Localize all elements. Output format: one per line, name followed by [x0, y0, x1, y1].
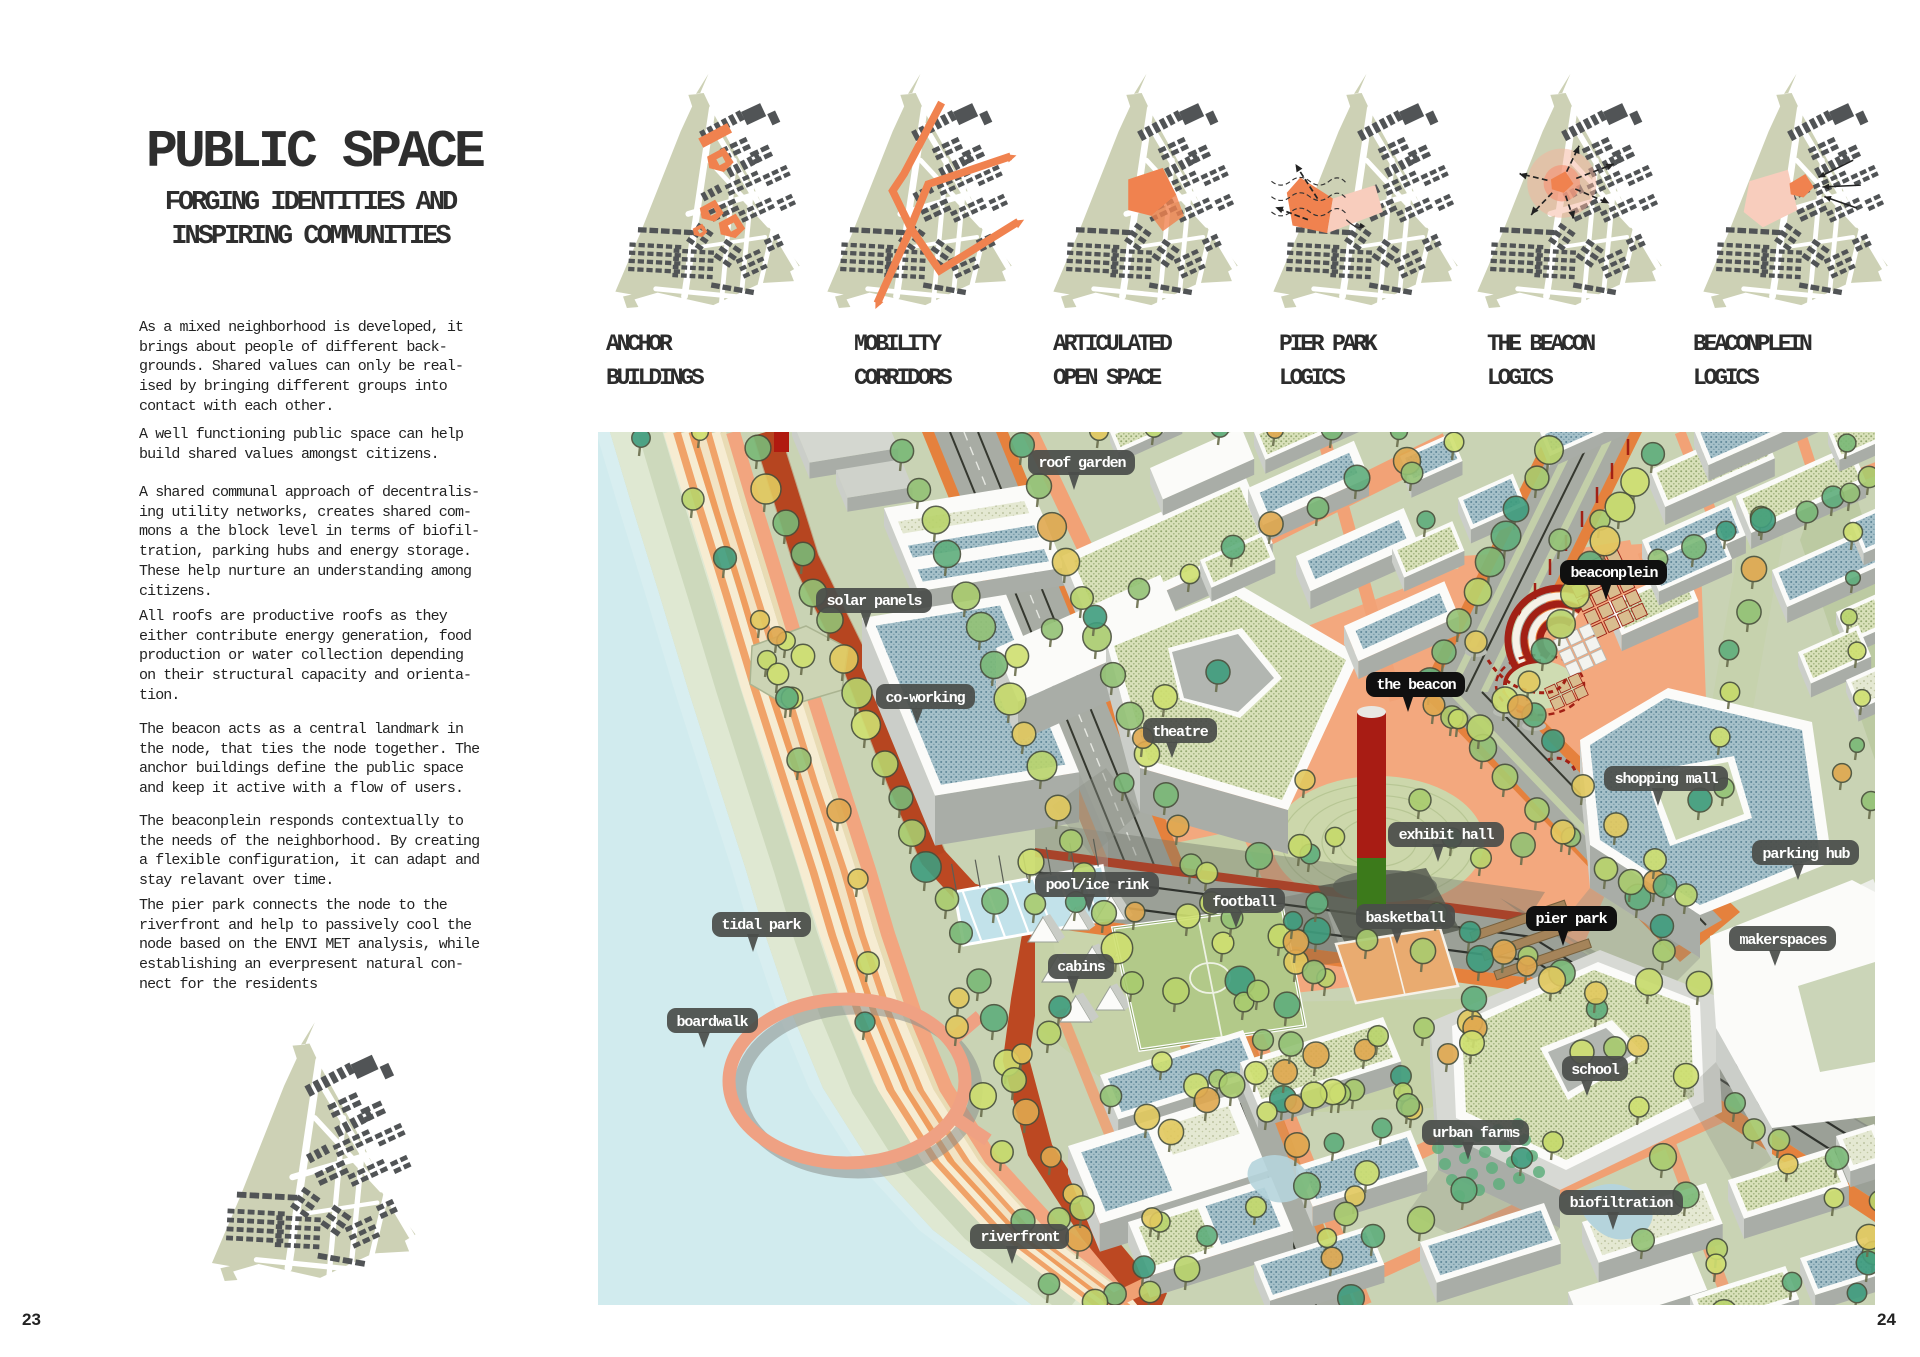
svg-text:the beacon: the beacon [1376, 677, 1456, 694]
svg-text:co-working: co-working [885, 690, 965, 707]
svg-text:exhibit hall: exhibit hall [1399, 827, 1495, 844]
svg-text:basketball: basketball [1365, 910, 1445, 927]
svg-text:football: football [1212, 894, 1276, 911]
svg-text:riverfront: riverfront [980, 1229, 1059, 1246]
svg-text:makerspaces: makerspaces [1740, 932, 1828, 949]
svg-text:tidal park: tidal park [721, 917, 801, 934]
svg-text:parking hub: parking hub [1763, 846, 1851, 863]
svg-text:urban farms: urban farms [1433, 1125, 1521, 1142]
svg-text:biofiltration: biofiltration [1570, 1195, 1674, 1212]
svg-text:cabins: cabins [1057, 959, 1106, 976]
svg-text:solar panels: solar panels [827, 593, 923, 610]
svg-text:roof garden: roof garden [1039, 455, 1127, 472]
svg-text:boardwalk: boardwalk [676, 1014, 748, 1031]
svg-text:pool/ice rink: pool/ice rink [1046, 877, 1150, 894]
svg-text:shopping mall: shopping mall [1615, 771, 1719, 788]
svg-text:theatre: theatre [1152, 724, 1208, 741]
svg-text:beaconplein: beaconplein [1571, 565, 1659, 582]
svg-text:pier park: pier park [1535, 911, 1607, 928]
svg-text:school: school [1571, 1062, 1620, 1079]
